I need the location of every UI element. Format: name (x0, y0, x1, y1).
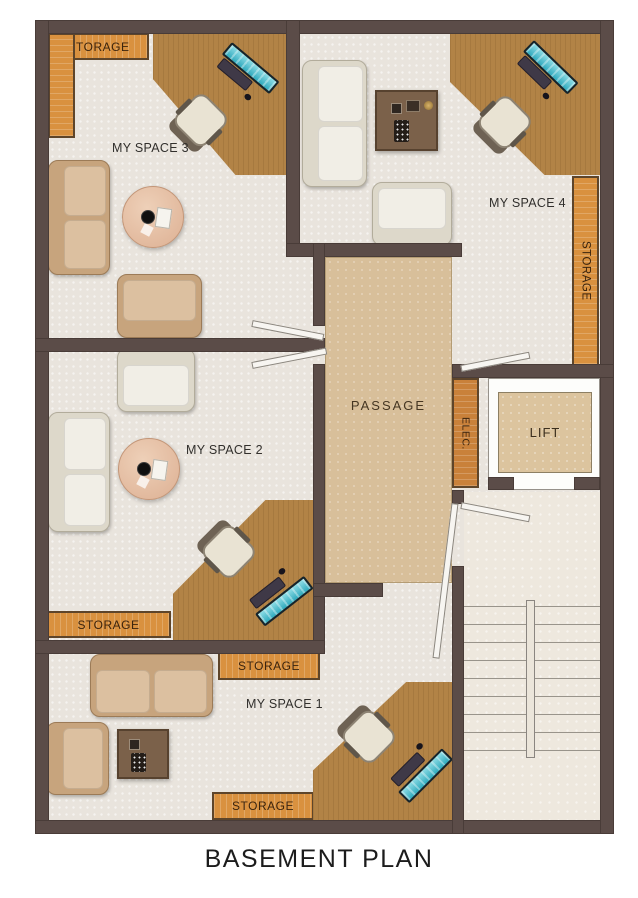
outer-wall-left (35, 20, 49, 834)
wall-stair-left (452, 566, 464, 834)
keypad-icon (394, 120, 409, 142)
armchair-space3 (117, 274, 202, 338)
gadget-table-space1 (117, 729, 169, 779)
wall-passage-left-lower (313, 364, 325, 654)
paper-icon (140, 223, 154, 237)
storage-space4-right: STORAGE (572, 176, 599, 366)
outer-wall-bottom (35, 820, 614, 834)
outer-wall-right (600, 20, 614, 834)
armchair-cushion (123, 280, 196, 321)
room-label-space3: MY SPACE 3 (112, 141, 189, 155)
storage-space2: STORAGE (46, 611, 171, 638)
room-label-space4: MY SPACE 4 (489, 196, 566, 210)
sofa-space3 (48, 160, 110, 275)
room-label-space2: MY SPACE 2 (186, 443, 263, 457)
round-table-space2 (118, 438, 180, 500)
armchair-cushion (378, 188, 446, 229)
armchair-space4 (372, 182, 452, 246)
plan-title: BASEMENT PLAN (0, 845, 638, 874)
gadget-table-space4 (375, 90, 438, 151)
sofa-cushion (318, 66, 363, 122)
passage-floor: PASSAGE (325, 257, 452, 583)
wall-space2-space1 (35, 640, 325, 654)
cup-icon (141, 210, 155, 224)
device-icon (406, 100, 420, 112)
round-table-space3 (122, 186, 184, 248)
dial-icon (424, 101, 433, 110)
lift-label: LIFT (530, 425, 561, 440)
lift-door-jamb-left (488, 477, 514, 490)
sofa-cushion (64, 474, 106, 526)
wall-passage-bottom (313, 583, 383, 597)
room-label-space1: MY SPACE 1 (246, 697, 323, 711)
storage-space1-bottom: STORAGE (212, 792, 314, 820)
storage-label: STORAGE (580, 241, 592, 301)
notepad-icon (151, 459, 169, 481)
lift-car: LIFT (498, 392, 592, 473)
elec-label: ELEC. (460, 417, 472, 450)
sofa-cushion (154, 670, 208, 713)
device-icon (129, 739, 140, 750)
storage-label: STORAGE (68, 40, 130, 54)
stair-railing (526, 600, 535, 758)
storage-space1-top: STORAGE (218, 652, 320, 680)
storage-label: STORAGE (238, 659, 300, 673)
keypad-icon (131, 753, 146, 772)
outer-wall-top (35, 20, 614, 34)
elec-panel: ELEC. (452, 378, 479, 488)
passage-label: PASSAGE (351, 398, 426, 582)
wall-space3-space2 (35, 338, 325, 352)
storage-space3-vertical (48, 33, 75, 138)
armchair-cushion (63, 728, 103, 789)
cup-icon (137, 462, 151, 476)
sofa-space1 (90, 654, 213, 717)
sofa-cushion (318, 126, 363, 182)
wall-space3-space4 (286, 20, 300, 257)
notepad-icon (155, 207, 173, 229)
armchair-space1 (46, 722, 109, 795)
armchair-space2 (117, 348, 195, 412)
basement-floor-plan: PASSAGE LIFT STORAGE STORAGE STORAGE STO… (0, 0, 638, 898)
sofa-cushion (64, 166, 106, 216)
storage-label: STORAGE (78, 618, 140, 632)
wall-passage-left-upper (313, 243, 325, 326)
storage-label: STORAGE (232, 799, 294, 813)
sofa-space4 (302, 60, 367, 187)
sofa-cushion (96, 670, 150, 713)
sofa-cushion (64, 220, 106, 270)
sofa-cushion (64, 418, 106, 470)
lift-door-jamb-right (574, 477, 600, 490)
armchair-cushion (123, 365, 189, 406)
sofa-space2 (48, 412, 110, 532)
paper-icon (136, 475, 150, 489)
device-icon (391, 103, 402, 114)
